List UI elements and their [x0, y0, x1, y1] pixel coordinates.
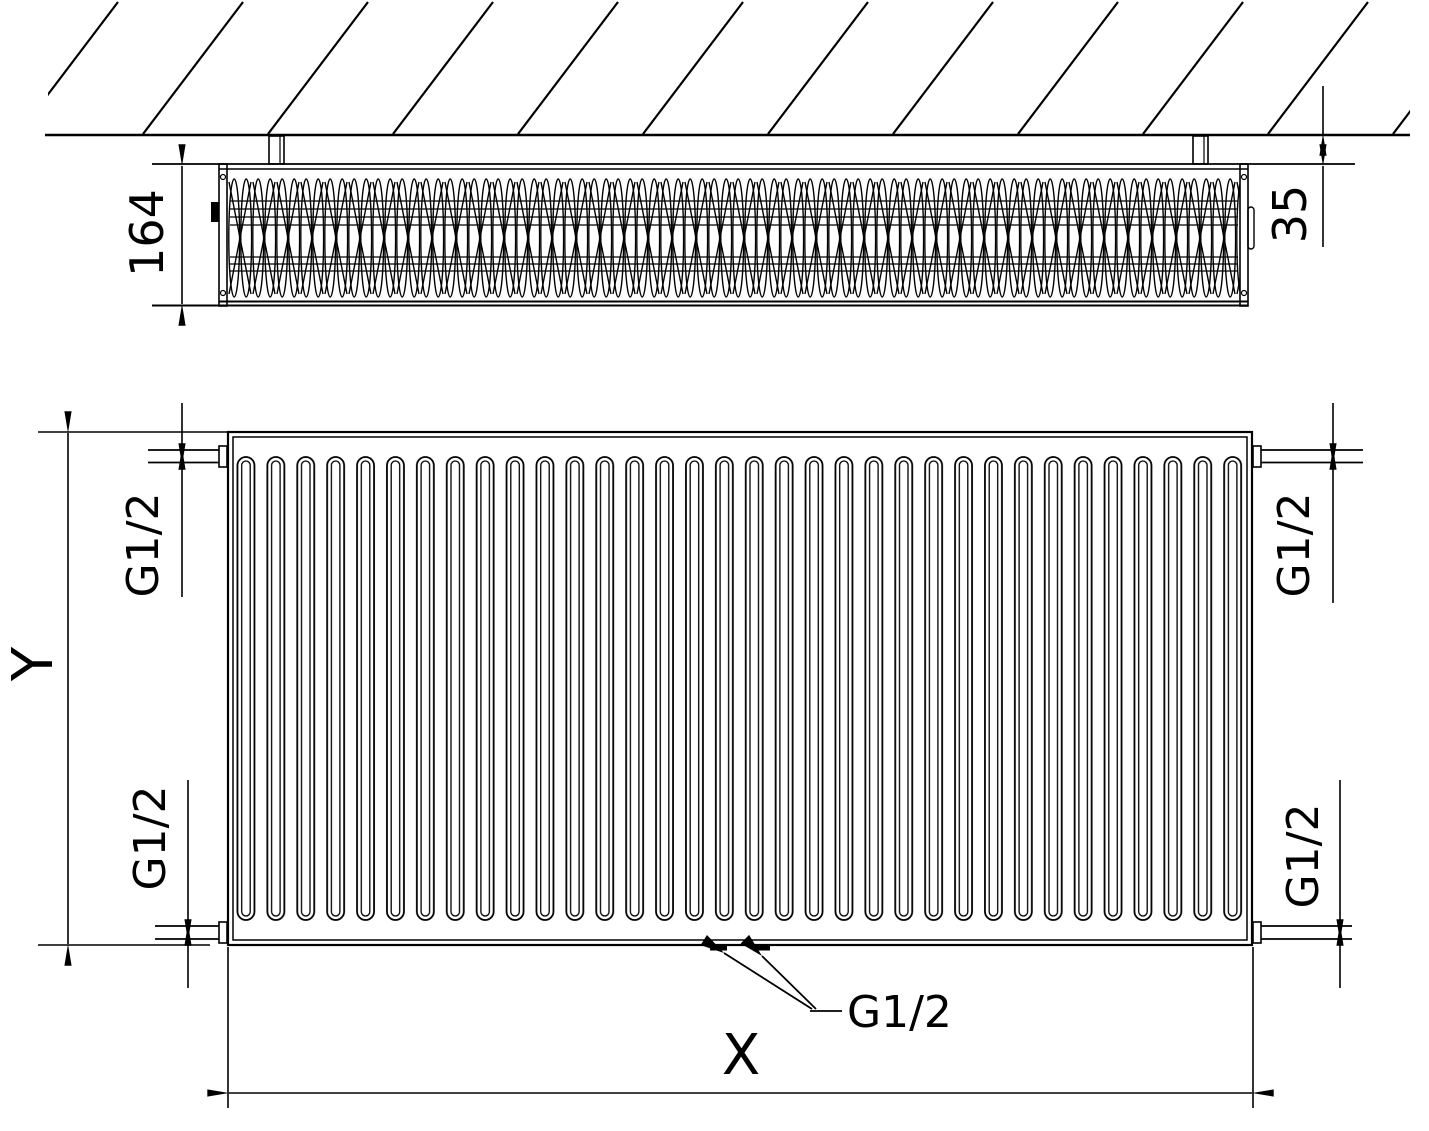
thread-label-bottom-right: G1/2	[1278, 804, 1329, 909]
dimension-thread-bottom-right: G1/2	[1278, 780, 1340, 988]
depth-dimension-label: 164	[120, 189, 174, 277]
dimension-thread-bottom-left: G1/2	[125, 780, 188, 988]
thread-label-top-left: G1/2	[118, 493, 169, 598]
dimension-thread-top-right: G1/2	[1269, 403, 1333, 603]
bottom-center-tab-left	[710, 945, 727, 951]
radiator-technical-drawing: 164 35	[0, 0, 1429, 1131]
right-connection-boss	[1248, 207, 1254, 249]
drawing-svg: 164 35	[0, 0, 1429, 1131]
wall-bracket-right	[1193, 136, 1208, 164]
thread-label-bottom-center: G1/2	[847, 987, 952, 1038]
radiator-front-view-body	[228, 432, 1252, 945]
pipe-connection-top-left	[148, 446, 227, 467]
wall-clearance-dimension-label: 35	[1263, 185, 1317, 244]
bottom-center-tab-right	[753, 945, 770, 951]
front-view: G1/2 G1/2 G1/2 G1/2 Y X	[1, 403, 1363, 1108]
dimension-depth: 164	[120, 166, 182, 304]
height-dimension-label: Y	[1, 646, 66, 682]
pipe-connection-bottom-left	[155, 922, 227, 943]
radiator-top-view-body	[152, 164, 1355, 306]
end-cap-left	[219, 164, 227, 306]
panel-grooves	[231, 454, 1248, 924]
end-cap-right	[1240, 164, 1248, 306]
thread-label-bottom-left: G1/2	[125, 786, 176, 891]
wall-hatching	[48, 0, 1410, 134]
wall-bracket-left	[269, 136, 284, 164]
pipe-connection-bottom-right	[1253, 922, 1352, 943]
pipe-connection-top-right	[1253, 446, 1363, 467]
width-dimension-label: X	[722, 1023, 760, 1088]
top-view: 164 35	[45, 0, 1410, 306]
dimension-height: Y	[1, 432, 228, 945]
dimension-width: X	[228, 947, 1253, 1108]
convector-fins	[228, 176, 1240, 300]
left-connection-tab	[211, 202, 219, 222]
thread-label-top-right: G1/2	[1269, 493, 1320, 598]
